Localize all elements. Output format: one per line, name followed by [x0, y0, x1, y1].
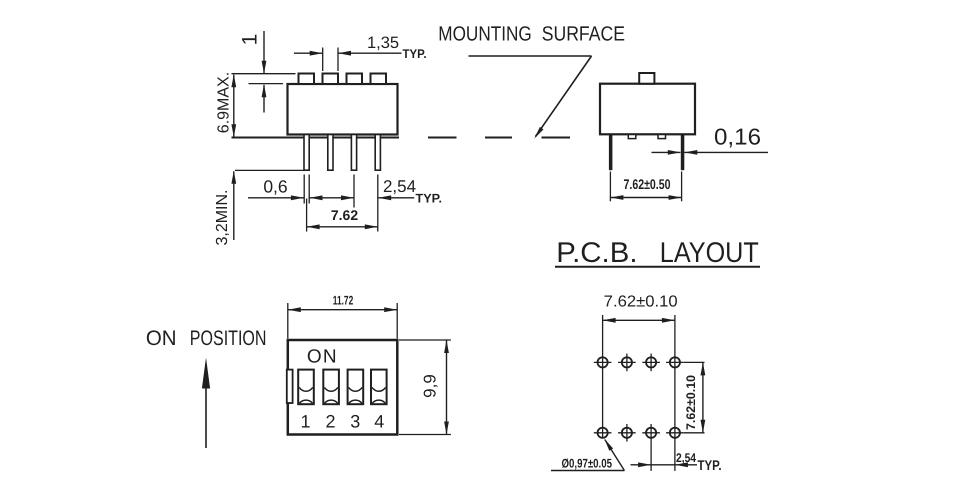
svg-text:6.9MAX.: 6.9MAX.: [216, 72, 233, 133]
svg-text:LAYOUT: LAYOUT: [660, 237, 759, 269]
svg-text:ON: ON: [146, 327, 177, 350]
svg-text:2: 2: [325, 411, 335, 431]
svg-text:TYP.: TYP.: [698, 457, 722, 473]
svg-text:SURFACE: SURFACE: [542, 23, 625, 46]
svg-text:7.62±0.50: 7.62±0.50: [624, 176, 671, 192]
svg-text:7.62±0.10: 7.62±0.10: [684, 375, 698, 430]
svg-text:TYP.: TYP.: [416, 192, 443, 206]
svg-text:1,35: 1,35: [367, 34, 399, 52]
svg-text:1: 1: [300, 411, 310, 431]
svg-text:0,6: 0,6: [263, 177, 287, 197]
svg-text:TYP.: TYP.: [403, 47, 427, 61]
svg-text:4: 4: [374, 411, 384, 431]
svg-text:3,2MIN.: 3,2MIN.: [214, 189, 231, 245]
svg-text:P.C.B.: P.C.B.: [556, 237, 637, 269]
svg-text:MOUNTING: MOUNTING: [438, 23, 531, 46]
svg-text:2,54: 2,54: [383, 177, 416, 196]
svg-text:3: 3: [350, 411, 360, 431]
svg-text:2,54: 2,54: [676, 451, 696, 465]
svg-text:9,9: 9,9: [421, 374, 440, 398]
svg-text:POSITION: POSITION: [190, 327, 267, 350]
svg-text:7.62: 7.62: [331, 207, 358, 223]
svg-text:7.62±0.10: 7.62±0.10: [604, 294, 678, 311]
svg-text:1: 1: [239, 34, 262, 46]
svg-text:11.72: 11.72: [333, 294, 354, 308]
svg-text:ON: ON: [307, 346, 338, 367]
svg-text:0,16: 0,16: [714, 124, 761, 150]
svg-text:Ø0,97±0.05: Ø0,97±0.05: [562, 456, 613, 470]
